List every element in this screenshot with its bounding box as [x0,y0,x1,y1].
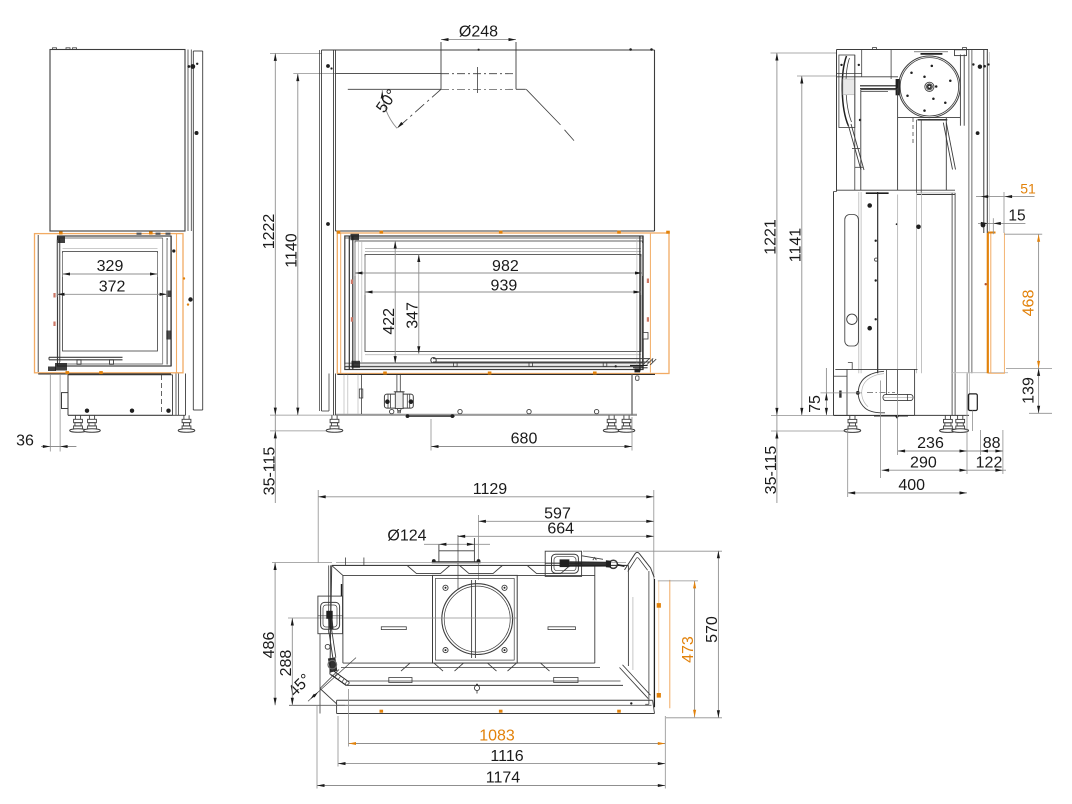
svg-text:422: 422 [381,308,398,335]
svg-text:290: 290 [910,454,937,471]
svg-text:236: 236 [917,435,944,452]
svg-text:35-115: 35-115 [261,447,278,496]
svg-text:75: 75 [807,395,824,413]
svg-text:372: 372 [99,279,126,296]
svg-text:88: 88 [983,435,1001,452]
svg-text:35-115: 35-115 [763,446,780,495]
svg-text:680: 680 [511,431,538,448]
svg-text:982: 982 [492,258,519,275]
svg-text:1140: 1140 [284,233,301,268]
svg-text:Ø248: Ø248 [459,23,498,40]
svg-text:664: 664 [547,521,574,538]
svg-text:468: 468 [1020,290,1037,317]
svg-text:122: 122 [976,454,1003,471]
svg-text:15: 15 [1008,207,1025,224]
svg-text:1129: 1129 [473,481,508,498]
svg-text:51: 51 [1020,181,1036,197]
svg-text:347: 347 [404,302,421,329]
svg-text:1116: 1116 [490,748,523,765]
svg-text:1221: 1221 [763,219,780,255]
svg-text:36: 36 [16,433,34,450]
svg-text:1083: 1083 [479,728,515,745]
svg-text:570: 570 [704,616,721,643]
svg-text:139: 139 [1020,377,1037,404]
svg-text:939: 939 [491,278,518,295]
svg-text:329: 329 [97,258,124,275]
svg-text:473: 473 [680,636,697,663]
svg-text:1222: 1222 [261,214,278,250]
svg-text:1141: 1141 [788,228,805,263]
svg-text:400: 400 [898,477,925,494]
svg-text:1174: 1174 [486,770,521,787]
svg-text:Ø124: Ø124 [387,528,426,545]
svg-text:486: 486 [261,632,278,659]
svg-text:288: 288 [278,650,295,677]
